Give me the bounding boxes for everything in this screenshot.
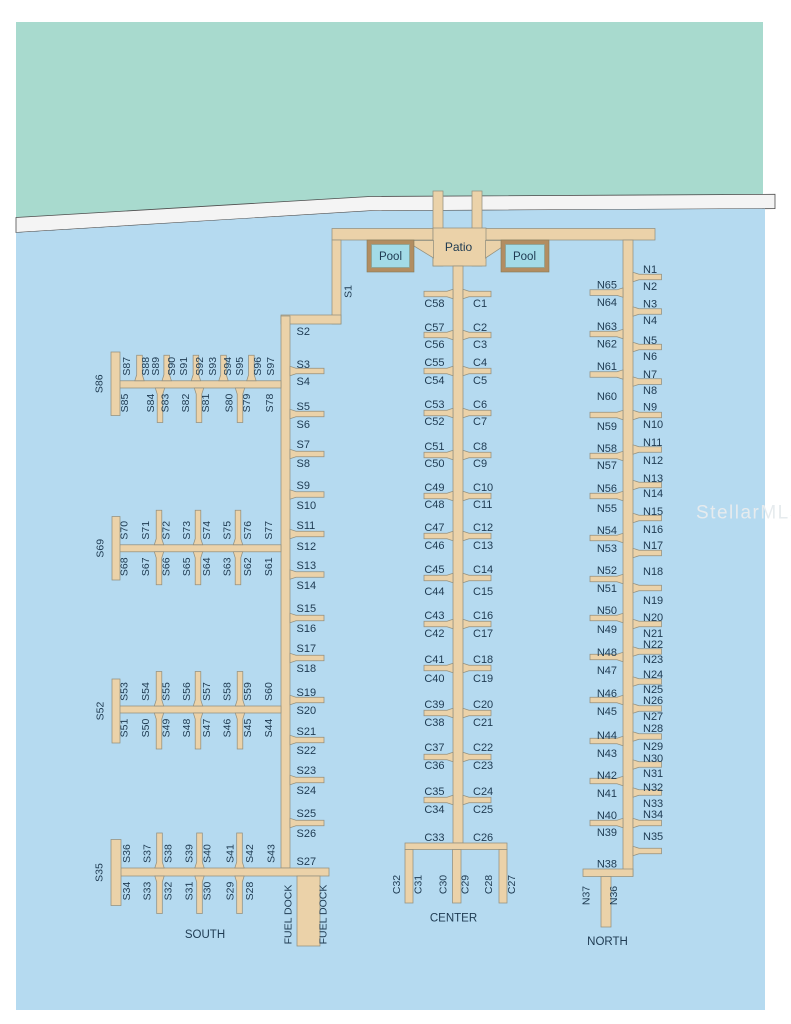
svg-text:C17: C17 <box>473 628 493 640</box>
svg-text:N4: N4 <box>643 315 657 327</box>
svg-text:N9: N9 <box>643 402 657 414</box>
svg-text:S36: S36 <box>121 844 133 863</box>
svg-text:C42: C42 <box>424 628 444 640</box>
svg-text:C35: C35 <box>424 786 444 798</box>
svg-text:N6: N6 <box>643 351 657 363</box>
svg-text:C4: C4 <box>473 357 487 369</box>
svg-text:S77: S77 <box>263 521 275 540</box>
svg-text:S27: S27 <box>297 856 317 868</box>
svg-text:S95: S95 <box>234 357 246 376</box>
svg-text:C19: C19 <box>473 673 493 685</box>
svg-text:C44: C44 <box>424 586 444 598</box>
svg-text:N28: N28 <box>643 723 663 735</box>
svg-text:S78: S78 <box>264 394 276 413</box>
svg-text:N59: N59 <box>597 421 617 433</box>
svg-text:C47: C47 <box>424 522 444 534</box>
svg-text:S4: S4 <box>297 376 310 388</box>
svg-text:C21: C21 <box>473 717 493 729</box>
svg-text:N58: N58 <box>597 443 617 455</box>
svg-text:S40: S40 <box>202 844 214 863</box>
svg-text:S39: S39 <box>184 844 196 863</box>
svg-text:N26: N26 <box>643 695 663 707</box>
svg-text:S79: S79 <box>241 394 253 413</box>
svg-text:N53: N53 <box>597 543 617 555</box>
svg-text:N5: N5 <box>643 335 657 347</box>
svg-text:N2: N2 <box>643 281 657 293</box>
svg-text:S64: S64 <box>201 557 213 576</box>
svg-text:C53: C53 <box>424 399 444 411</box>
svg-text:C31: C31 <box>413 875 425 894</box>
svg-text:S6: S6 <box>297 419 310 431</box>
svg-text:S44: S44 <box>263 719 275 738</box>
svg-text:C29: C29 <box>460 875 472 894</box>
svg-text:N36: N36 <box>608 886 620 905</box>
svg-text:N30: N30 <box>643 753 663 765</box>
svg-text:S9: S9 <box>297 480 310 492</box>
svg-text:S93: S93 <box>207 357 219 376</box>
svg-text:S66: S66 <box>161 557 173 576</box>
svg-text:S13: S13 <box>297 560 317 572</box>
svg-text:SOUTH: SOUTH <box>185 929 225 941</box>
svg-text:N18: N18 <box>643 566 663 578</box>
svg-text:S8: S8 <box>297 458 310 470</box>
svg-text:N56: N56 <box>597 483 617 495</box>
svg-text:N45: N45 <box>597 706 617 718</box>
svg-text:S37: S37 <box>142 844 154 863</box>
svg-text:C45: C45 <box>424 564 444 576</box>
svg-text:S73: S73 <box>181 521 193 540</box>
svg-text:C27: C27 <box>506 875 518 894</box>
svg-text:S26: S26 <box>297 828 317 840</box>
svg-text:C52: C52 <box>424 416 444 428</box>
svg-text:C6: C6 <box>473 399 487 411</box>
svg-text:S16: S16 <box>297 623 317 635</box>
svg-text:C18: C18 <box>473 654 493 666</box>
svg-text:S10: S10 <box>297 500 317 512</box>
svg-text:S2: S2 <box>297 326 310 338</box>
svg-text:C41: C41 <box>424 654 444 666</box>
svg-text:S71: S71 <box>140 521 152 540</box>
svg-text:C24: C24 <box>473 786 493 798</box>
svg-text:C43: C43 <box>424 610 444 622</box>
svg-text:N43: N43 <box>597 748 617 760</box>
svg-text:N63: N63 <box>597 321 617 333</box>
svg-text:S17: S17 <box>297 643 317 655</box>
svg-text:C55: C55 <box>424 357 444 369</box>
svg-text:N11: N11 <box>643 437 662 449</box>
svg-text:S81: S81 <box>200 394 212 413</box>
svg-text:N20: N20 <box>643 612 663 624</box>
svg-text:C51: C51 <box>424 441 444 453</box>
svg-text:N44: N44 <box>597 730 617 742</box>
svg-text:C56: C56 <box>424 339 444 351</box>
svg-text:C16: C16 <box>473 610 493 622</box>
svg-text:S65: S65 <box>181 557 193 576</box>
svg-text:S89: S89 <box>150 357 162 376</box>
svg-text:S74: S74 <box>201 521 213 540</box>
svg-text:N52: N52 <box>597 565 617 577</box>
svg-text:C58: C58 <box>424 298 444 310</box>
svg-text:S24: S24 <box>297 785 317 797</box>
svg-text:StellarMLS: StellarMLS <box>696 503 791 524</box>
svg-text:N50: N50 <box>597 605 617 617</box>
svg-text:N54: N54 <box>597 525 617 537</box>
svg-text:S11: S11 <box>297 520 316 532</box>
svg-text:N32: N32 <box>643 782 663 794</box>
svg-text:S96: S96 <box>252 357 264 376</box>
svg-text:C39: C39 <box>424 699 444 711</box>
svg-text:S83: S83 <box>160 394 172 413</box>
svg-text:C12: C12 <box>473 522 493 534</box>
svg-text:N7: N7 <box>643 369 657 381</box>
svg-text:N49: N49 <box>597 624 617 636</box>
svg-text:N16: N16 <box>643 524 663 536</box>
svg-text:S38: S38 <box>163 844 175 863</box>
svg-text:C3: C3 <box>473 339 487 351</box>
svg-text:C32: C32 <box>391 875 403 894</box>
svg-text:N40: N40 <box>597 810 617 822</box>
svg-text:S21: S21 <box>297 726 317 738</box>
svg-text:S87: S87 <box>121 357 133 376</box>
svg-text:C1: C1 <box>473 298 487 310</box>
svg-text:S12: S12 <box>297 541 317 553</box>
svg-text:N31: N31 <box>643 768 663 780</box>
svg-text:N24: N24 <box>643 669 663 681</box>
svg-text:FUEL DOCK: FUEL DOCK <box>318 885 330 945</box>
svg-text:S23: S23 <box>297 765 317 777</box>
svg-text:S62: S62 <box>242 557 254 576</box>
svg-text:S25: S25 <box>297 808 317 820</box>
svg-text:C10: C10 <box>473 482 493 494</box>
svg-text:N39: N39 <box>597 827 617 839</box>
svg-text:N60: N60 <box>597 391 617 403</box>
svg-text:S47: S47 <box>201 719 213 738</box>
svg-text:N13: N13 <box>643 473 663 485</box>
svg-text:N42: N42 <box>597 770 617 782</box>
svg-text:S75: S75 <box>222 521 234 540</box>
svg-text:S82: S82 <box>180 394 192 413</box>
svg-text:C33: C33 <box>424 832 444 844</box>
svg-text:C34: C34 <box>424 804 444 816</box>
svg-text:C23: C23 <box>473 760 493 772</box>
svg-text:S63: S63 <box>222 557 234 576</box>
svg-text:N17: N17 <box>643 540 663 552</box>
svg-text:S57: S57 <box>201 682 213 701</box>
svg-text:S56: S56 <box>181 682 193 701</box>
svg-text:S69: S69 <box>95 539 107 558</box>
svg-text:C48: C48 <box>424 499 444 511</box>
svg-text:S22: S22 <box>297 745 317 757</box>
svg-text:S49: S49 <box>161 719 173 738</box>
svg-text:S1: S1 <box>343 285 355 298</box>
svg-text:S5: S5 <box>297 401 310 413</box>
svg-text:C25: C25 <box>473 804 493 816</box>
svg-text:Pool: Pool <box>379 251 402 263</box>
svg-text:N55: N55 <box>597 503 617 515</box>
svg-text:S85: S85 <box>119 394 131 413</box>
svg-text:Patio: Patio <box>445 240 473 254</box>
svg-text:N10: N10 <box>643 419 663 431</box>
svg-text:S90: S90 <box>166 357 178 376</box>
svg-text:S18: S18 <box>297 663 317 675</box>
svg-text:S84: S84 <box>145 394 157 413</box>
svg-text:S31: S31 <box>184 882 196 901</box>
svg-text:C40: C40 <box>424 673 444 685</box>
svg-text:S52: S52 <box>95 702 107 721</box>
svg-text:N47: N47 <box>597 665 617 677</box>
svg-text:Pool: Pool <box>513 251 536 263</box>
svg-text:N35: N35 <box>643 831 663 843</box>
svg-text:FUEL DOCK: FUEL DOCK <box>283 885 295 945</box>
svg-text:S48: S48 <box>181 719 193 738</box>
svg-text:C49: C49 <box>424 482 444 494</box>
svg-text:N64: N64 <box>597 297 617 309</box>
svg-text:N61: N61 <box>597 361 617 373</box>
svg-text:N23: N23 <box>643 654 663 666</box>
svg-text:S51: S51 <box>119 719 131 738</box>
svg-text:S45: S45 <box>242 719 254 738</box>
svg-text:S59: S59 <box>242 682 254 701</box>
svg-text:N51: N51 <box>597 583 617 595</box>
svg-text:S70: S70 <box>119 521 131 540</box>
svg-text:N57: N57 <box>597 460 617 472</box>
svg-text:CENTER: CENTER <box>430 913 477 925</box>
svg-text:C36: C36 <box>424 760 444 772</box>
svg-text:S19: S19 <box>297 687 317 699</box>
svg-text:N8: N8 <box>643 385 657 397</box>
svg-text:S35: S35 <box>94 863 106 882</box>
svg-text:S33: S33 <box>142 882 154 901</box>
svg-text:C37: C37 <box>424 742 444 754</box>
svg-text:N65: N65 <box>597 280 617 292</box>
svg-text:S14: S14 <box>297 580 317 592</box>
svg-text:C14: C14 <box>473 564 493 576</box>
svg-text:N19: N19 <box>643 595 663 607</box>
svg-text:S55: S55 <box>161 682 173 701</box>
svg-text:S72: S72 <box>161 521 173 540</box>
svg-text:C5: C5 <box>473 375 487 387</box>
svg-text:C7: C7 <box>473 416 487 428</box>
svg-text:S86: S86 <box>94 374 106 393</box>
svg-text:S68: S68 <box>119 557 131 576</box>
svg-text:C15: C15 <box>473 586 493 598</box>
svg-text:C28: C28 <box>483 875 495 894</box>
svg-text:S60: S60 <box>263 682 275 701</box>
svg-text:S50: S50 <box>140 719 152 738</box>
svg-text:S58: S58 <box>222 682 234 701</box>
svg-text:S92: S92 <box>194 357 206 376</box>
svg-text:S43: S43 <box>266 844 278 863</box>
svg-text:S54: S54 <box>140 682 152 701</box>
svg-text:N3: N3 <box>643 299 657 311</box>
svg-text:S94: S94 <box>222 357 234 376</box>
svg-text:N12: N12 <box>643 455 663 467</box>
svg-text:S15: S15 <box>297 603 317 615</box>
svg-text:S32: S32 <box>163 882 175 901</box>
svg-text:N48: N48 <box>597 647 617 659</box>
svg-text:S67: S67 <box>140 557 152 576</box>
svg-text:C38: C38 <box>424 717 444 729</box>
svg-text:N15: N15 <box>643 506 663 518</box>
svg-text:S30: S30 <box>202 882 214 901</box>
svg-text:C50: C50 <box>424 458 444 470</box>
svg-text:S42: S42 <box>244 844 256 863</box>
svg-text:N1: N1 <box>643 264 657 276</box>
svg-text:N34: N34 <box>643 809 663 821</box>
svg-text:N14: N14 <box>643 488 663 500</box>
svg-text:S61: S61 <box>263 557 275 576</box>
svg-text:S46: S46 <box>222 719 234 738</box>
svg-text:C57: C57 <box>424 322 444 334</box>
svg-text:N27: N27 <box>643 711 663 723</box>
svg-text:S91: S91 <box>178 357 190 376</box>
svg-text:S41: S41 <box>225 844 237 863</box>
svg-text:N22: N22 <box>643 639 663 651</box>
svg-text:C46: C46 <box>424 540 444 552</box>
svg-text:S29: S29 <box>225 882 237 901</box>
svg-text:N62: N62 <box>597 339 617 351</box>
svg-text:C13: C13 <box>473 540 493 552</box>
svg-text:C9: C9 <box>473 458 487 470</box>
svg-text:C54: C54 <box>424 375 444 387</box>
svg-text:N29: N29 <box>643 741 663 753</box>
svg-text:S3: S3 <box>297 359 310 371</box>
svg-text:C30: C30 <box>438 875 450 894</box>
svg-text:S80: S80 <box>224 394 236 413</box>
svg-text:N46: N46 <box>597 688 617 700</box>
svg-text:C22: C22 <box>473 742 493 754</box>
svg-text:N37: N37 <box>581 886 593 905</box>
svg-text:C20: C20 <box>473 699 493 711</box>
svg-text:S53: S53 <box>119 682 131 701</box>
svg-text:S76: S76 <box>242 521 254 540</box>
svg-text:S28: S28 <box>244 882 256 901</box>
svg-text:S97: S97 <box>265 357 277 376</box>
svg-text:C11: C11 <box>473 499 492 511</box>
svg-text:S20: S20 <box>297 705 317 717</box>
svg-text:C26: C26 <box>473 832 493 844</box>
svg-text:N41: N41 <box>597 788 617 800</box>
svg-text:S34: S34 <box>121 882 133 901</box>
svg-text:C8: C8 <box>473 441 487 453</box>
svg-text:NORTH: NORTH <box>587 936 628 948</box>
svg-text:C2: C2 <box>473 322 487 334</box>
svg-text:S7: S7 <box>297 439 310 451</box>
